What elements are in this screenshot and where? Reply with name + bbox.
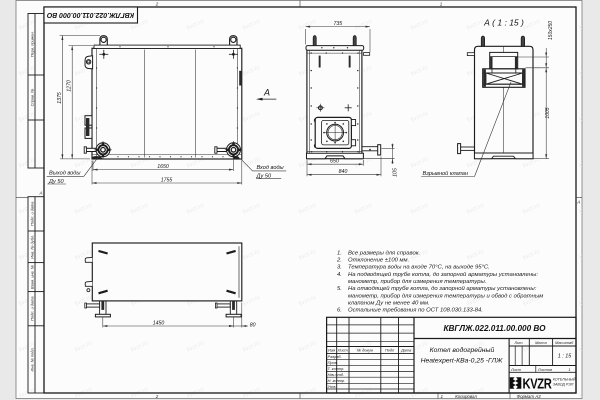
- svg-text:Нач.отд.: Нач.отд.: [328, 372, 344, 377]
- svg-text:3.: 3.: [337, 265, 342, 271]
- svg-text:2: 2: [155, 2, 159, 7]
- svg-text:ЗАВОД РЭП: ЗАВОД РЭП: [553, 383, 574, 387]
- svg-text:1650: 1650: [157, 164, 169, 170]
- svg-text:Лист: Лист: [510, 367, 522, 372]
- svg-text:Дата: Дата: [400, 347, 412, 352]
- svg-text:Пров.: Пров.: [328, 360, 338, 365]
- svg-text:манометр, прибор для измерения: манометр, прибор для измерения температу…: [348, 279, 486, 285]
- svg-text:А: А: [263, 88, 270, 98]
- svg-text:2: 2: [155, 394, 159, 399]
- svg-text:Инв. № подл.: Инв. № подл.: [29, 347, 34, 371]
- svg-text:клапаном Ду не менее 40 мм.: клапаном Ду не менее 40 мм.: [348, 301, 430, 307]
- svg-text:Листов: Листов: [537, 367, 552, 372]
- svg-text:4.: 4.: [337, 272, 342, 278]
- svg-text:КОТЕЛЬНЫЙ: КОТЕЛЬНЫЙ: [553, 378, 576, 382]
- svg-text:Подп. и дата: Подп. и дата: [29, 296, 34, 321]
- svg-text:2.: 2.: [336, 258, 342, 264]
- svg-text:KVZR: KVZR: [523, 377, 553, 393]
- svg-text:Т. контр.: Т. контр.: [328, 366, 345, 371]
- svg-text:Отклонение ±100 мм.: Отклонение ±100 мм.: [348, 258, 409, 264]
- svg-text:Подп. и дата: Подп. и дата: [29, 201, 34, 226]
- svg-text:1: 1: [568, 367, 570, 372]
- svg-text:Лист: Лист: [337, 347, 349, 352]
- svg-text:Утв.: Утв.: [328, 384, 337, 389]
- svg-text:№ докум: № докум: [357, 347, 373, 352]
- svg-text:манометр, прибор для измерения: манометр, прибор для измерения температу…: [348, 293, 543, 299]
- svg-text:1270: 1270: [67, 80, 73, 92]
- svg-text:Котел водогрейный: Котел водогрейный: [430, 346, 495, 354]
- svg-text:105: 105: [392, 168, 398, 177]
- svg-text:1005: 1005: [545, 107, 551, 118]
- svg-text:Разраб.: Разраб.: [328, 354, 342, 359]
- svg-text:5.: 5.: [337, 286, 342, 292]
- svg-text:735: 735: [333, 21, 342, 27]
- svg-text:Лит.: Лит.: [513, 340, 523, 345]
- svg-text:На отводящей трубе котла, до з: На отводящей трубе котла, до запорной ар…: [348, 285, 537, 292]
- svg-text:1450: 1450: [153, 321, 165, 327]
- svg-text:1.: 1.: [337, 250, 342, 256]
- svg-text:Все размеры для справок.: Все размеры для справок.: [348, 250, 420, 256]
- svg-text:Температура воды на входе 70°С: Температура воды на входе 70°С, на выход…: [348, 265, 490, 271]
- svg-text:Н. контр.: Н. контр.: [328, 378, 346, 383]
- svg-text:1755: 1755: [161, 177, 173, 183]
- svg-text:Вход воды: Вход воды: [257, 165, 284, 171]
- svg-text:КВГЛЖ.022.011.00.000 ВО: КВГЛЖ.022.011.00.000 ВО: [443, 324, 546, 333]
- svg-text:Формат А3: Формат А3: [517, 394, 542, 399]
- svg-text:Масштаб: Масштаб: [555, 340, 574, 345]
- svg-text:150х250: 150х250: [548, 21, 554, 40]
- svg-text:Взам. инв. №: Взам. инв. №: [29, 264, 34, 289]
- svg-text:На подводящей трубе котла, до: На подводящей трубе котла, до запорной а…: [348, 271, 538, 278]
- svg-text:А ( 1 : 15 ): А ( 1 : 15 ): [483, 18, 524, 28]
- svg-text:Инв. № дубл.: Инв. № дубл.: [29, 235, 34, 259]
- svg-text:Масса: Масса: [535, 340, 547, 345]
- svg-text:Остальные требования по ОСТ 10: Остальные требования по ОСТ 108.030.133-…: [348, 307, 483, 313]
- svg-text:650: 650: [330, 159, 339, 165]
- svg-text:1375: 1375: [57, 92, 63, 104]
- svg-text:Выход воды: Выход воды: [49, 171, 80, 177]
- svg-text:Взрывной клапан: Взрывной клапан: [423, 170, 468, 177]
- svg-text:Изм: Изм: [328, 347, 336, 352]
- svg-text:80: 80: [250, 322, 256, 328]
- svg-text:Перв. примен.: Перв. примен.: [29, 31, 34, 57]
- svg-text:А: А: [38, 191, 42, 196]
- svg-text:Heatexpert-КВа-0,25 -ГЛЖ: Heatexpert-КВа-0,25 -ГЛЖ: [421, 358, 504, 365]
- svg-text:840: 840: [339, 169, 348, 175]
- svg-text:Справ. №: Справ. №: [29, 88, 34, 106]
- svg-text:КВГЛЖ.022.011.00.000 ВО: КВГЛЖ.022.011.00.000 ВО: [46, 11, 134, 18]
- svg-text:А: А: [576, 200, 580, 205]
- svg-text:Подп: Подп: [385, 347, 395, 352]
- svg-text:1 : 15: 1 : 15: [558, 353, 572, 359]
- svg-text:Копировал: Копировал: [455, 394, 477, 399]
- svg-text:6.: 6.: [337, 307, 342, 313]
